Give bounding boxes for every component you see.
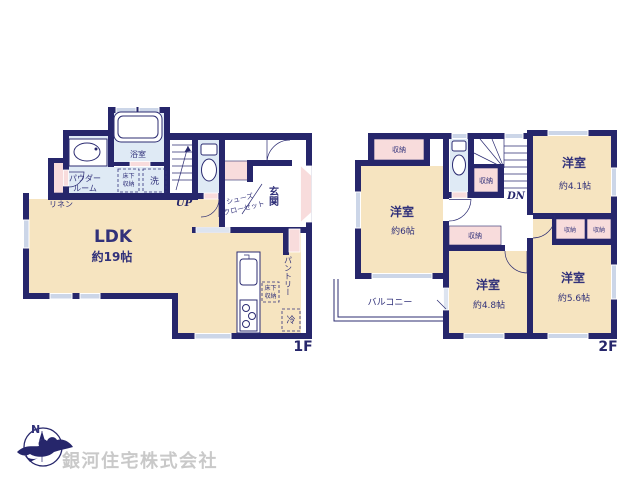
linen-label: リネン bbox=[49, 200, 73, 209]
storage-41b-label: 収納 bbox=[593, 226, 605, 234]
compass-north-label: N bbox=[31, 423, 40, 436]
floor1-plan: LDK 約19帖 浴室 パウダー ルーム 床下 収納 洗 リネン UP シューズ… bbox=[23, 107, 313, 355]
room-west6 bbox=[361, 166, 443, 273]
company-name: 銀河住宅株式会社 bbox=[62, 450, 218, 472]
genkan-label: 玄関 bbox=[267, 185, 279, 207]
floor1-label: 1F bbox=[293, 339, 312, 355]
shoe-shelf bbox=[224, 161, 250, 180]
floor2-label: 2F bbox=[598, 339, 617, 355]
floor2-plan: 収納 洋室 約6帖 収納 DN 洋室 約4.1帖 収納 収納 収納 洋室 約4.… bbox=[334, 130, 618, 355]
balcony-label: バルコニー bbox=[368, 297, 413, 308]
underfloor-b-label-1: 床下 bbox=[264, 284, 276, 292]
stairs-1f bbox=[172, 145, 192, 190]
storage-topleft-label: 収納 bbox=[392, 145, 406, 154]
west6-label: 洋室 bbox=[390, 204, 414, 219]
underfloor-a-label-1: 床下 bbox=[122, 172, 134, 180]
underfloor-a-label-2: 収納 bbox=[122, 180, 134, 188]
pantry-label: パントリー bbox=[284, 256, 293, 296]
west48-label: 洋室 bbox=[476, 277, 500, 292]
room-west48 bbox=[449, 251, 527, 333]
up-label: UP bbox=[176, 198, 193, 209]
west48-size-label: 約4.8帖 bbox=[473, 299, 505, 311]
bathtub bbox=[114, 112, 162, 142]
west41-size-label: 約4.1帖 bbox=[559, 180, 591, 192]
underfloor-b-label-2: 収納 bbox=[264, 292, 276, 300]
toilet-2f-fixture bbox=[452, 141, 466, 175]
storage-stairs-label: 収納 bbox=[479, 176, 493, 185]
wash-label: 洗 bbox=[150, 175, 159, 187]
fridge-label: 冷 bbox=[286, 314, 295, 326]
floorplan-canvas: LDK 約19帖 浴室 パウダー ルーム 床下 収納 洗 リネン UP シューズ… bbox=[0, 0, 640, 480]
pantry-door bbox=[289, 229, 300, 252]
room-west41 bbox=[533, 136, 611, 213]
toilet-door-2f bbox=[452, 192, 467, 198]
bath-door bbox=[130, 162, 150, 167]
dn-label: DN bbox=[506, 191, 526, 202]
storage-hall-label: 収納 bbox=[468, 231, 482, 240]
toilet-door-1f bbox=[204, 193, 218, 199]
west56-label: 洋室 bbox=[561, 270, 585, 285]
powder-sink bbox=[69, 139, 107, 166]
powder-label-1: パウダー bbox=[69, 173, 101, 183]
west41-label: 洋室 bbox=[562, 155, 586, 170]
storage-41a-label: 収納 bbox=[564, 226, 576, 234]
west6-size-label: 約6帖 bbox=[391, 225, 415, 237]
powder-door bbox=[64, 170, 69, 186]
company-logo: N 銀河住宅株式会社 bbox=[17, 423, 218, 472]
kitchen-counter bbox=[237, 252, 260, 333]
powder-label-2: ルーム bbox=[73, 184, 97, 193]
west56-size-label: 約5.6帖 bbox=[558, 292, 590, 304]
ldk-size-label: 約19帖 bbox=[92, 249, 133, 264]
bath-label: 浴室 bbox=[130, 149, 146, 159]
toilet-1f-fixture bbox=[201, 144, 217, 181]
ldk-label: LDK bbox=[94, 227, 133, 247]
